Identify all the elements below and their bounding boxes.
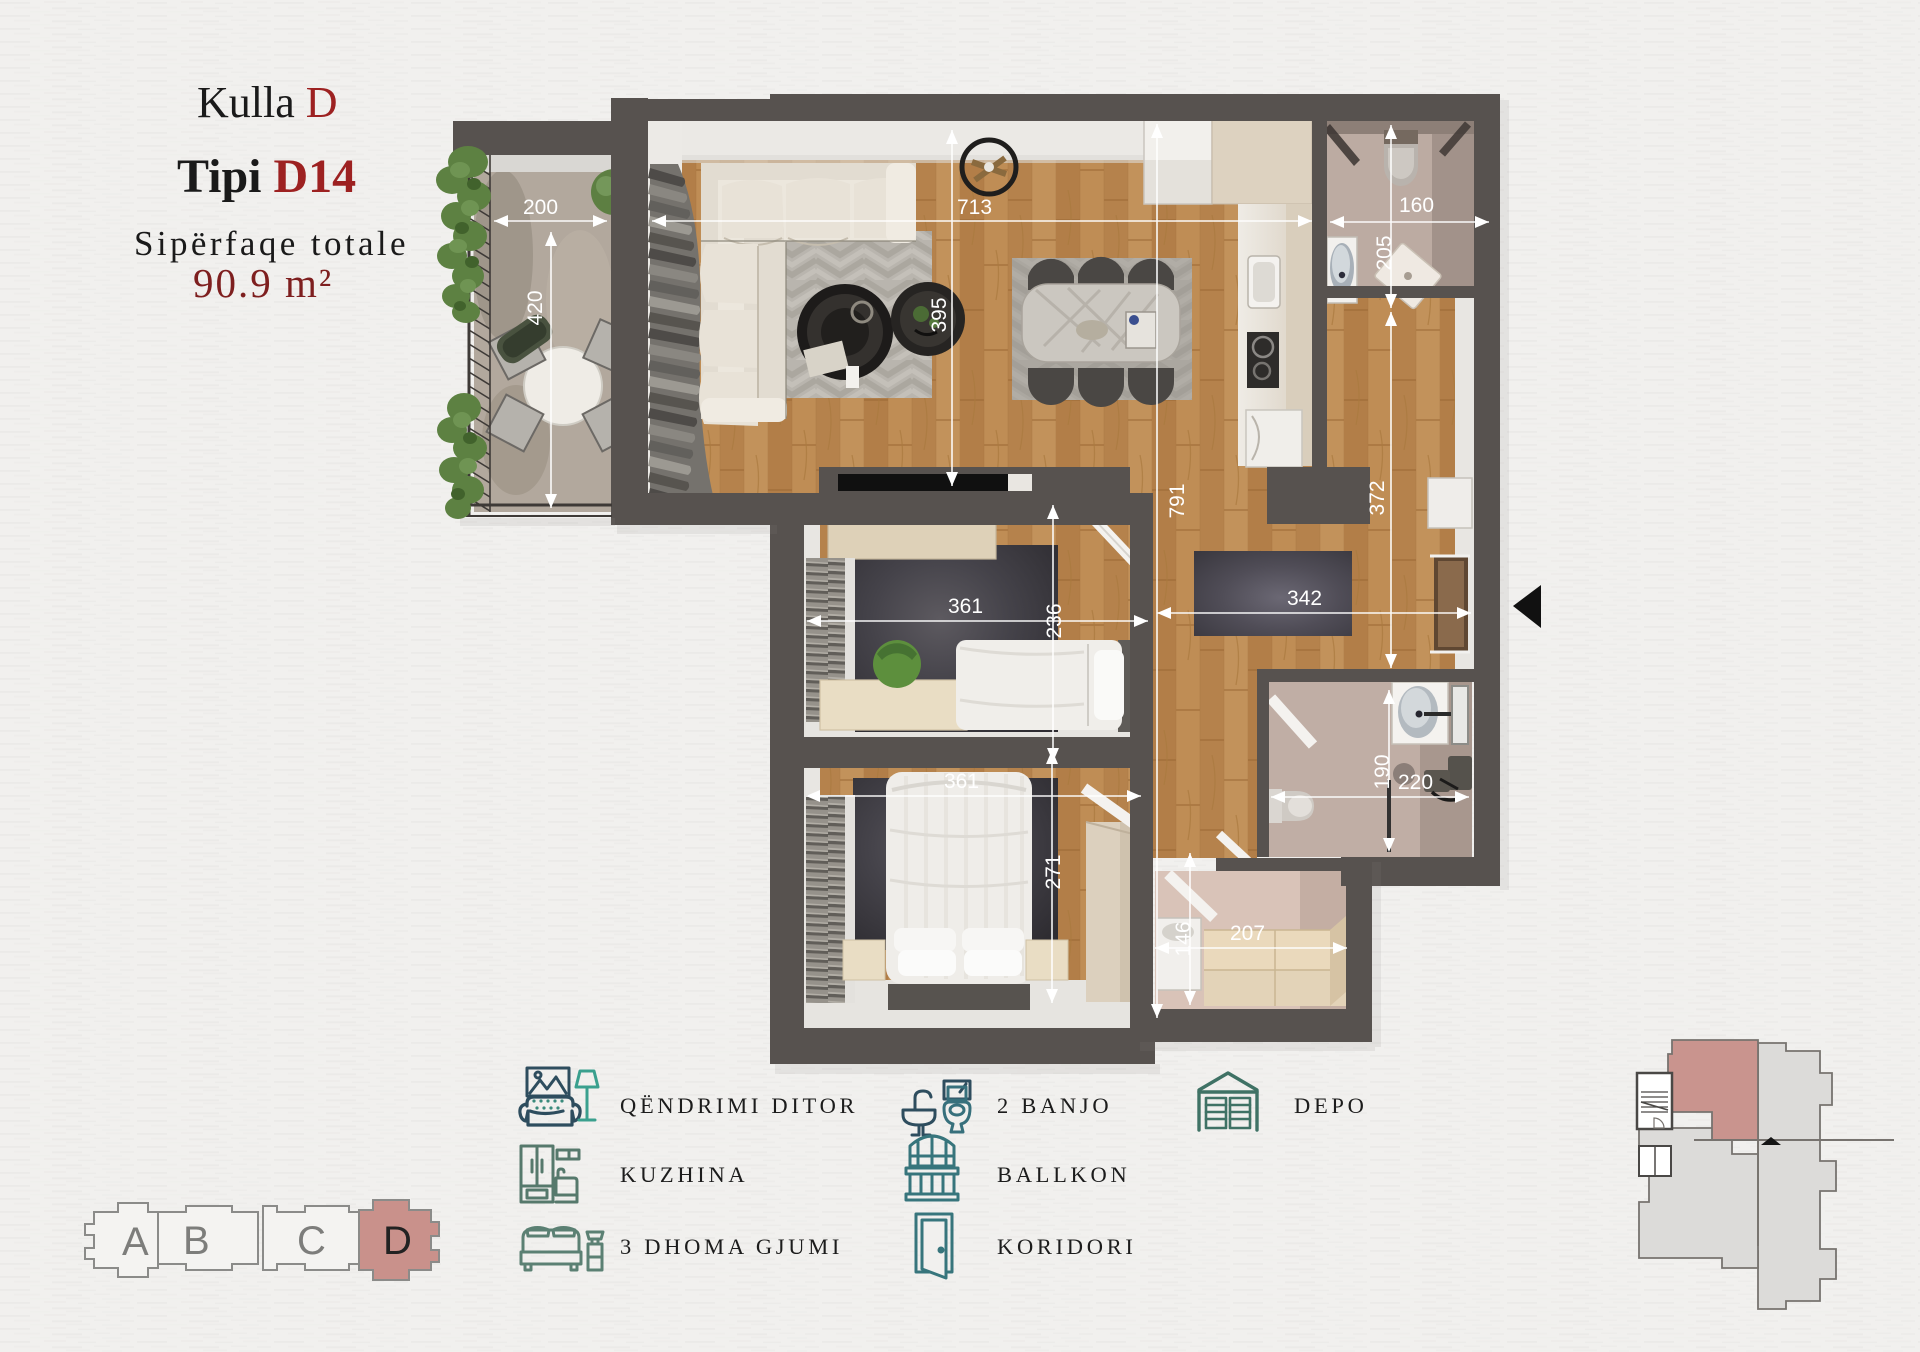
svg-text:361: 361 xyxy=(944,770,979,793)
svg-text:Tipi D14: Tipi D14 xyxy=(177,150,356,203)
svg-text:207: 207 xyxy=(1230,922,1265,945)
svg-text:372: 372 xyxy=(1366,480,1389,515)
svg-text:342: 342 xyxy=(1287,587,1322,610)
svg-text:160: 160 xyxy=(1399,194,1434,217)
svg-text:271: 271 xyxy=(1042,854,1065,889)
svg-text:395: 395 xyxy=(928,297,951,332)
svg-text:146: 146 xyxy=(1172,921,1195,956)
svg-text:KORIDORI: KORIDORI xyxy=(997,1234,1137,1259)
svg-text:BALLKON: BALLKON xyxy=(997,1162,1130,1187)
svg-text:791: 791 xyxy=(1166,483,1189,518)
svg-text:200: 200 xyxy=(523,196,558,219)
svg-text:Sipërfaqe totale: Sipërfaqe totale xyxy=(134,224,409,263)
svg-text:236: 236 xyxy=(1043,603,1066,638)
svg-text:2 BANJO: 2 BANJO xyxy=(997,1093,1112,1118)
svg-text:220: 220 xyxy=(1398,771,1433,794)
svg-text:DEPO: DEPO xyxy=(1294,1093,1368,1118)
svg-text:QËNDRIMI DITOR: QËNDRIMI DITOR xyxy=(620,1093,858,1118)
svg-text:B: B xyxy=(183,1219,210,1263)
svg-text:713: 713 xyxy=(957,196,992,219)
svg-text:Kulla D: Kulla D xyxy=(197,78,338,127)
svg-text:190: 190 xyxy=(1371,754,1394,789)
svg-text:A: A xyxy=(122,1220,149,1264)
svg-text:361: 361 xyxy=(948,595,983,618)
svg-text:420: 420 xyxy=(524,290,547,325)
svg-text:205: 205 xyxy=(1373,235,1396,270)
svg-text:90.9 m²: 90.9 m² xyxy=(193,260,333,306)
svg-text:D: D xyxy=(383,1219,412,1263)
svg-text:KUZHINA: KUZHINA xyxy=(620,1162,748,1187)
svg-text:C: C xyxy=(297,1219,326,1263)
svg-text:3 DHOMA GJUMI: 3 DHOMA GJUMI xyxy=(620,1234,843,1259)
